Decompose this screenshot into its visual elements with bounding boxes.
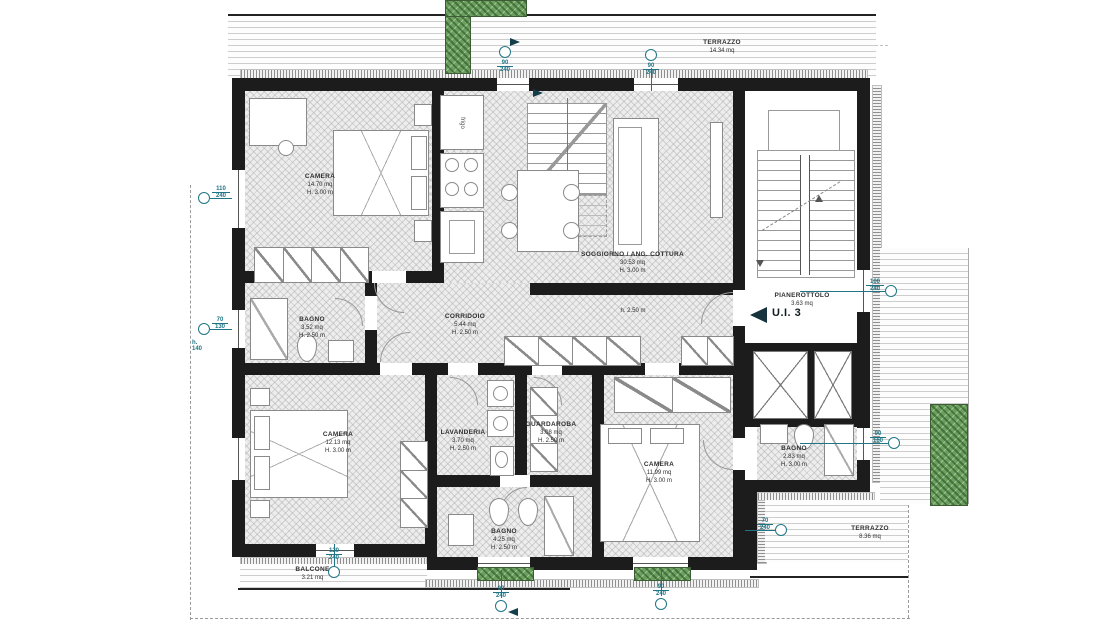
door-gap xyxy=(365,296,377,330)
room-label-soggiorno: SOGGIORNO / ANG. COTTURA 30.53 mq H. 3.0… xyxy=(555,250,710,276)
elevator-shaft xyxy=(753,351,808,419)
room-label-bagno-est: BAGNO 2.83 mq H. 3.00 m xyxy=(764,444,824,470)
level-flag-icon xyxy=(533,89,543,97)
wardrobe xyxy=(255,247,369,283)
planter-right xyxy=(930,404,968,506)
door-gap xyxy=(733,438,745,470)
nightstand xyxy=(250,500,270,518)
corridor-wardrobe xyxy=(682,336,734,366)
window xyxy=(634,78,678,91)
floor-plan: TERRAZZO 14.34 mq xyxy=(0,0,1112,628)
dining-table xyxy=(517,170,579,252)
chair xyxy=(501,222,518,239)
window xyxy=(232,438,245,480)
wall xyxy=(232,78,870,91)
pillow xyxy=(608,428,642,444)
fridge: frigo xyxy=(440,95,484,150)
planter-window-box xyxy=(634,567,691,581)
door-gap xyxy=(733,290,745,326)
pillow xyxy=(411,136,427,170)
stair-stringer xyxy=(800,155,810,275)
window xyxy=(857,428,870,460)
balcony-railing xyxy=(238,588,570,590)
stair-down-arrow-icon xyxy=(756,260,764,267)
bathroom-sink xyxy=(760,424,788,444)
door-gap xyxy=(372,271,406,283)
door-gap xyxy=(380,363,412,375)
wall xyxy=(425,557,757,570)
chair xyxy=(563,184,580,201)
cooktop xyxy=(440,153,484,208)
room-label-bagno-nord: BAGNO 3.52 mq H. 2.50 m xyxy=(283,315,341,341)
wardrobe xyxy=(615,377,731,413)
boundary-dashed-bottom xyxy=(190,618,910,619)
desk xyxy=(249,98,307,146)
planter-top-horizontal xyxy=(445,0,527,17)
room-label-corridoio: CORRIDOIO 5.44 mq H. 2.50 m xyxy=(425,312,505,338)
desk-chair xyxy=(278,140,294,156)
unit-label: U.I. 3 xyxy=(772,307,801,319)
stair-up-arrow-icon xyxy=(815,195,823,202)
room-label-camera3: CAMERA 11.99 mq H. 3.00 m xyxy=(624,460,694,486)
unit-arrow-icon xyxy=(750,307,767,323)
door-gap xyxy=(448,363,478,375)
shower xyxy=(824,424,854,476)
terrace-railing xyxy=(750,576,908,578)
boundary-dashed-left xyxy=(190,185,191,620)
pillow xyxy=(254,456,270,490)
service-shaft xyxy=(814,351,852,419)
wall xyxy=(745,480,870,492)
planter-window-box xyxy=(477,567,534,581)
nightstand xyxy=(414,104,432,126)
washing-machine xyxy=(487,380,514,407)
door-gap xyxy=(645,363,679,375)
room-label-bagno-centrale: BAGNO 4.25 mq H. 2.50 m xyxy=(474,527,534,553)
window xyxy=(497,78,529,91)
pillow xyxy=(411,176,427,210)
room-label-camera2: CAMERA 12.13 mq H. 3.00 m xyxy=(300,430,376,456)
kitchen-sink xyxy=(440,211,484,263)
window xyxy=(232,310,245,348)
wardrobe xyxy=(400,442,428,528)
chair xyxy=(501,184,518,201)
room-label-guardaroba: GUARDAROBA 3.08 mq H. 2.50 m xyxy=(512,420,590,446)
door-gap xyxy=(500,475,530,487)
wall xyxy=(530,283,745,295)
room-label-camera1: CAMERA 14.70 mq H. 3.00 m xyxy=(270,172,370,198)
room-label-terrazzo-nord: TERRAZZO 14.34 mq xyxy=(672,38,772,55)
corridor-height-note: h. 2.50 m xyxy=(608,307,658,315)
room-label-lavanderia: LAVANDERIA 3.70 mq H. 2.50 m xyxy=(432,428,494,454)
boundary-dashed-right xyxy=(908,490,909,618)
bathroom-sink xyxy=(328,340,354,362)
chair xyxy=(563,222,580,239)
wall xyxy=(733,91,745,570)
pillow xyxy=(650,428,684,444)
sofa xyxy=(613,118,659,256)
wall xyxy=(745,480,757,570)
corridor-wardrobe xyxy=(505,336,641,366)
window xyxy=(232,170,245,228)
tv-sideboard xyxy=(710,122,723,218)
nightstand xyxy=(250,388,270,406)
room-label-pianerottolo: PIANEROTTOLO 3.63 mq xyxy=(762,291,842,308)
room-label-terrazzo-est: TERRAZZO 8.36 mq xyxy=(830,524,910,541)
fridge-label: frigo xyxy=(459,102,465,144)
shower xyxy=(544,496,574,556)
insulation-band-bottom xyxy=(425,579,759,588)
nightstand xyxy=(414,220,432,242)
pillow xyxy=(254,416,270,450)
bathroom-sink xyxy=(448,514,474,546)
